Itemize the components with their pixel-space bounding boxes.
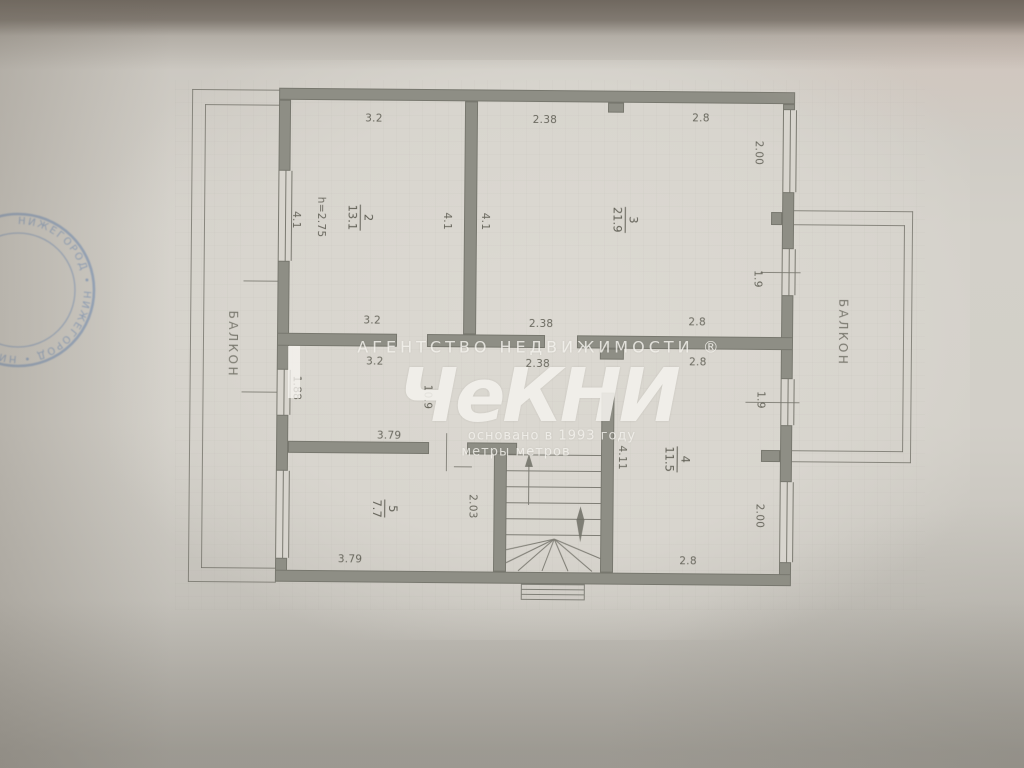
- window-opening: [275, 471, 290, 558]
- balcony-left-outline: [201, 567, 276, 569]
- balcony-left-outline: [201, 104, 206, 568]
- dim-label: 2.8: [689, 356, 707, 368]
- wall-right: [780, 425, 792, 482]
- dimension-tick: [242, 391, 277, 392]
- wall-left: [278, 100, 291, 171]
- photo-shadow-bottomright: [600, 500, 1024, 768]
- room-area: 21.9: [610, 207, 624, 233]
- balcony-right-outline: [792, 450, 903, 452]
- dim-label: 4.1: [290, 211, 302, 229]
- wall-room2-room3: [463, 101, 478, 334]
- wall-right: [782, 192, 794, 249]
- balcony-right-label: БАЛКОН: [836, 299, 851, 367]
- dim-label: 3.79: [338, 553, 363, 565]
- pilaster-top: [608, 103, 624, 113]
- dimension-tick: [761, 272, 801, 273]
- balcony-right-outline: [910, 211, 913, 463]
- balcony-left-outline: [188, 581, 276, 583]
- balcony-tab-bottom: [761, 450, 780, 462]
- dim-label: 2.38: [533, 114, 558, 126]
- dim-label: 2.03: [466, 494, 478, 519]
- balcony-left-outline: [205, 104, 280, 106]
- balcony-left-label: БАЛКОН: [226, 311, 241, 379]
- balcony-right-outline: [794, 224, 905, 226]
- watermark-fragment: [288, 346, 300, 398]
- room-area: 11.5: [662, 446, 676, 472]
- room-number: 4: [676, 446, 691, 472]
- room-label-5: 5 7.7: [370, 499, 400, 518]
- room-number: 2: [359, 205, 374, 231]
- watermark-founded-text: основано в 1993 году: [468, 429, 636, 444]
- dim-label: 3.2: [366, 355, 384, 367]
- balcony-right-outline: [902, 225, 905, 452]
- room-number: 3: [624, 207, 639, 233]
- balcony-right-outline: [792, 461, 911, 463]
- dim-label: 3.2: [363, 314, 381, 326]
- dim-label: 4.1: [479, 213, 491, 231]
- entry-steps: [521, 584, 585, 601]
- wall-room5-corridor: [288, 441, 429, 454]
- room-label-4: 4 11.5: [662, 446, 692, 472]
- dim-label: 4.11: [616, 445, 628, 470]
- dim-label: 2.8: [688, 316, 706, 328]
- room-label-2: 2 13.1: [345, 204, 375, 230]
- dim-label: 3.2: [365, 112, 383, 124]
- dim-label: 1.9: [751, 270, 763, 288]
- wall-left: [276, 415, 288, 471]
- staircase: [492, 440, 615, 577]
- room-label-3: 3 21.9: [610, 207, 640, 233]
- stair-down-arrow: [576, 506, 584, 542]
- dimension-tick: [244, 280, 278, 281]
- ceiling-height-label: h=2.75: [315, 197, 327, 238]
- dim-label: 1.9: [754, 391, 766, 409]
- photographed-floor-plan: НИЖЕГОРОД • НИЖЕГОРОД • НИЖЕГОРОД •: [0, 0, 1024, 768]
- dim-label: 4.1: [441, 212, 453, 230]
- watermark-tagline: метры метров: [461, 445, 570, 460]
- watermark-logo: ЧеКНИ: [398, 353, 677, 439]
- dim-label: 2.00: [753, 141, 765, 166]
- balcony-left-outline: [192, 89, 280, 91]
- room-area: 13.1: [345, 204, 359, 230]
- dim-label: 2.38: [529, 318, 554, 330]
- dimension-tick: [454, 466, 472, 467]
- balcony-right-outline: [794, 210, 913, 212]
- room-area: 7.7: [370, 499, 384, 517]
- room-number: 5: [384, 499, 399, 517]
- balcony-tab-top: [771, 212, 782, 225]
